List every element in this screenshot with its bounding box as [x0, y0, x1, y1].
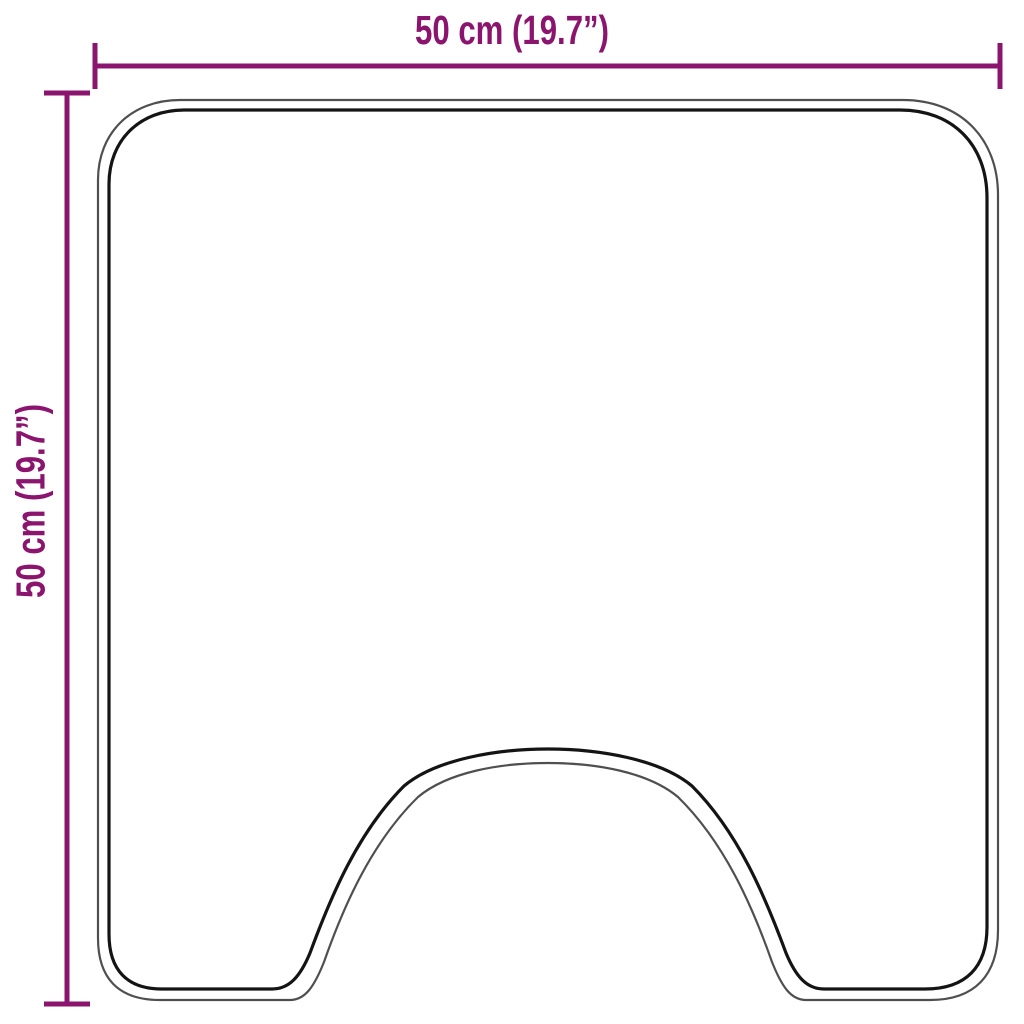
height-dimension-label: 50 cm (19.7”)	[8, 404, 55, 598]
diagram-canvas	[0, 0, 1024, 1024]
mat-outline-inner	[109, 110, 987, 989]
width-dimension-label: 50 cm (19.7”)	[415, 7, 609, 54]
mat-outline	[98, 100, 998, 1000]
mat-outline-outer	[98, 100, 998, 1000]
product-dimension-diagram: 50 cm (19.7”) 50 cm (19.7”)	[0, 0, 1024, 1024]
